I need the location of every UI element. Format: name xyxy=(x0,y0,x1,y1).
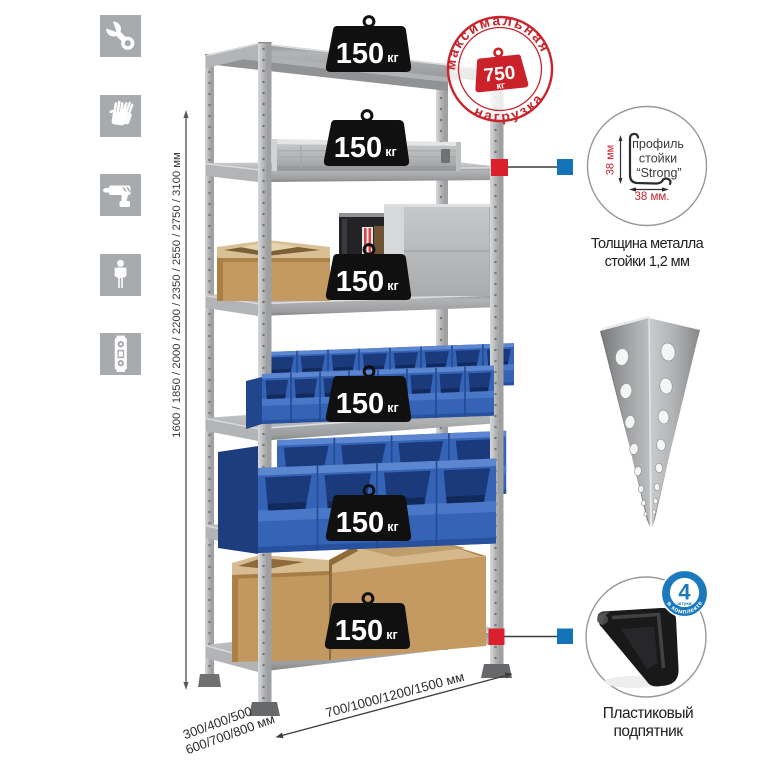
svg-text:штуки: штуки xyxy=(677,601,691,606)
svg-text:“Strong”: “Strong” xyxy=(636,166,681,180)
svg-text:1600 / 1850 / 2000 / 2200 / 23: 1600 / 1850 / 2000 / 2200 / 2350 / 2550 … xyxy=(171,152,183,438)
svg-text:Толщина металла: Толщина металла xyxy=(591,236,705,252)
svg-text:кг: кг xyxy=(387,279,398,293)
svg-text:кг: кг xyxy=(385,145,396,159)
svg-text:профиль: профиль xyxy=(632,137,684,151)
svg-text:стойки 1,2 мм: стойки 1,2 мм xyxy=(605,254,690,270)
svg-text:150: 150 xyxy=(336,38,384,70)
svg-text:150: 150 xyxy=(336,507,384,539)
svg-text:150: 150 xyxy=(335,615,383,647)
svg-text:кг: кг xyxy=(387,520,398,534)
svg-text:стойки: стойки xyxy=(639,152,677,166)
svg-text:38 мм: 38 мм xyxy=(605,145,617,175)
svg-text:150: 150 xyxy=(336,388,384,420)
svg-text:150: 150 xyxy=(336,266,384,298)
svg-text:Пластиковый: Пластиковый xyxy=(603,705,693,722)
svg-text:кг: кг xyxy=(387,401,398,415)
svg-text:кг: кг xyxy=(386,628,397,642)
svg-text:38 мм.: 38 мм. xyxy=(635,191,670,203)
svg-text:кг: кг xyxy=(387,51,398,65)
svg-text:подпятник: подпятник xyxy=(613,723,683,740)
svg-text:кг: кг xyxy=(496,80,506,92)
svg-text:150: 150 xyxy=(334,132,382,164)
svg-text:700/1000/1200/1500 мм: 700/1000/1200/1500 мм xyxy=(324,669,466,720)
